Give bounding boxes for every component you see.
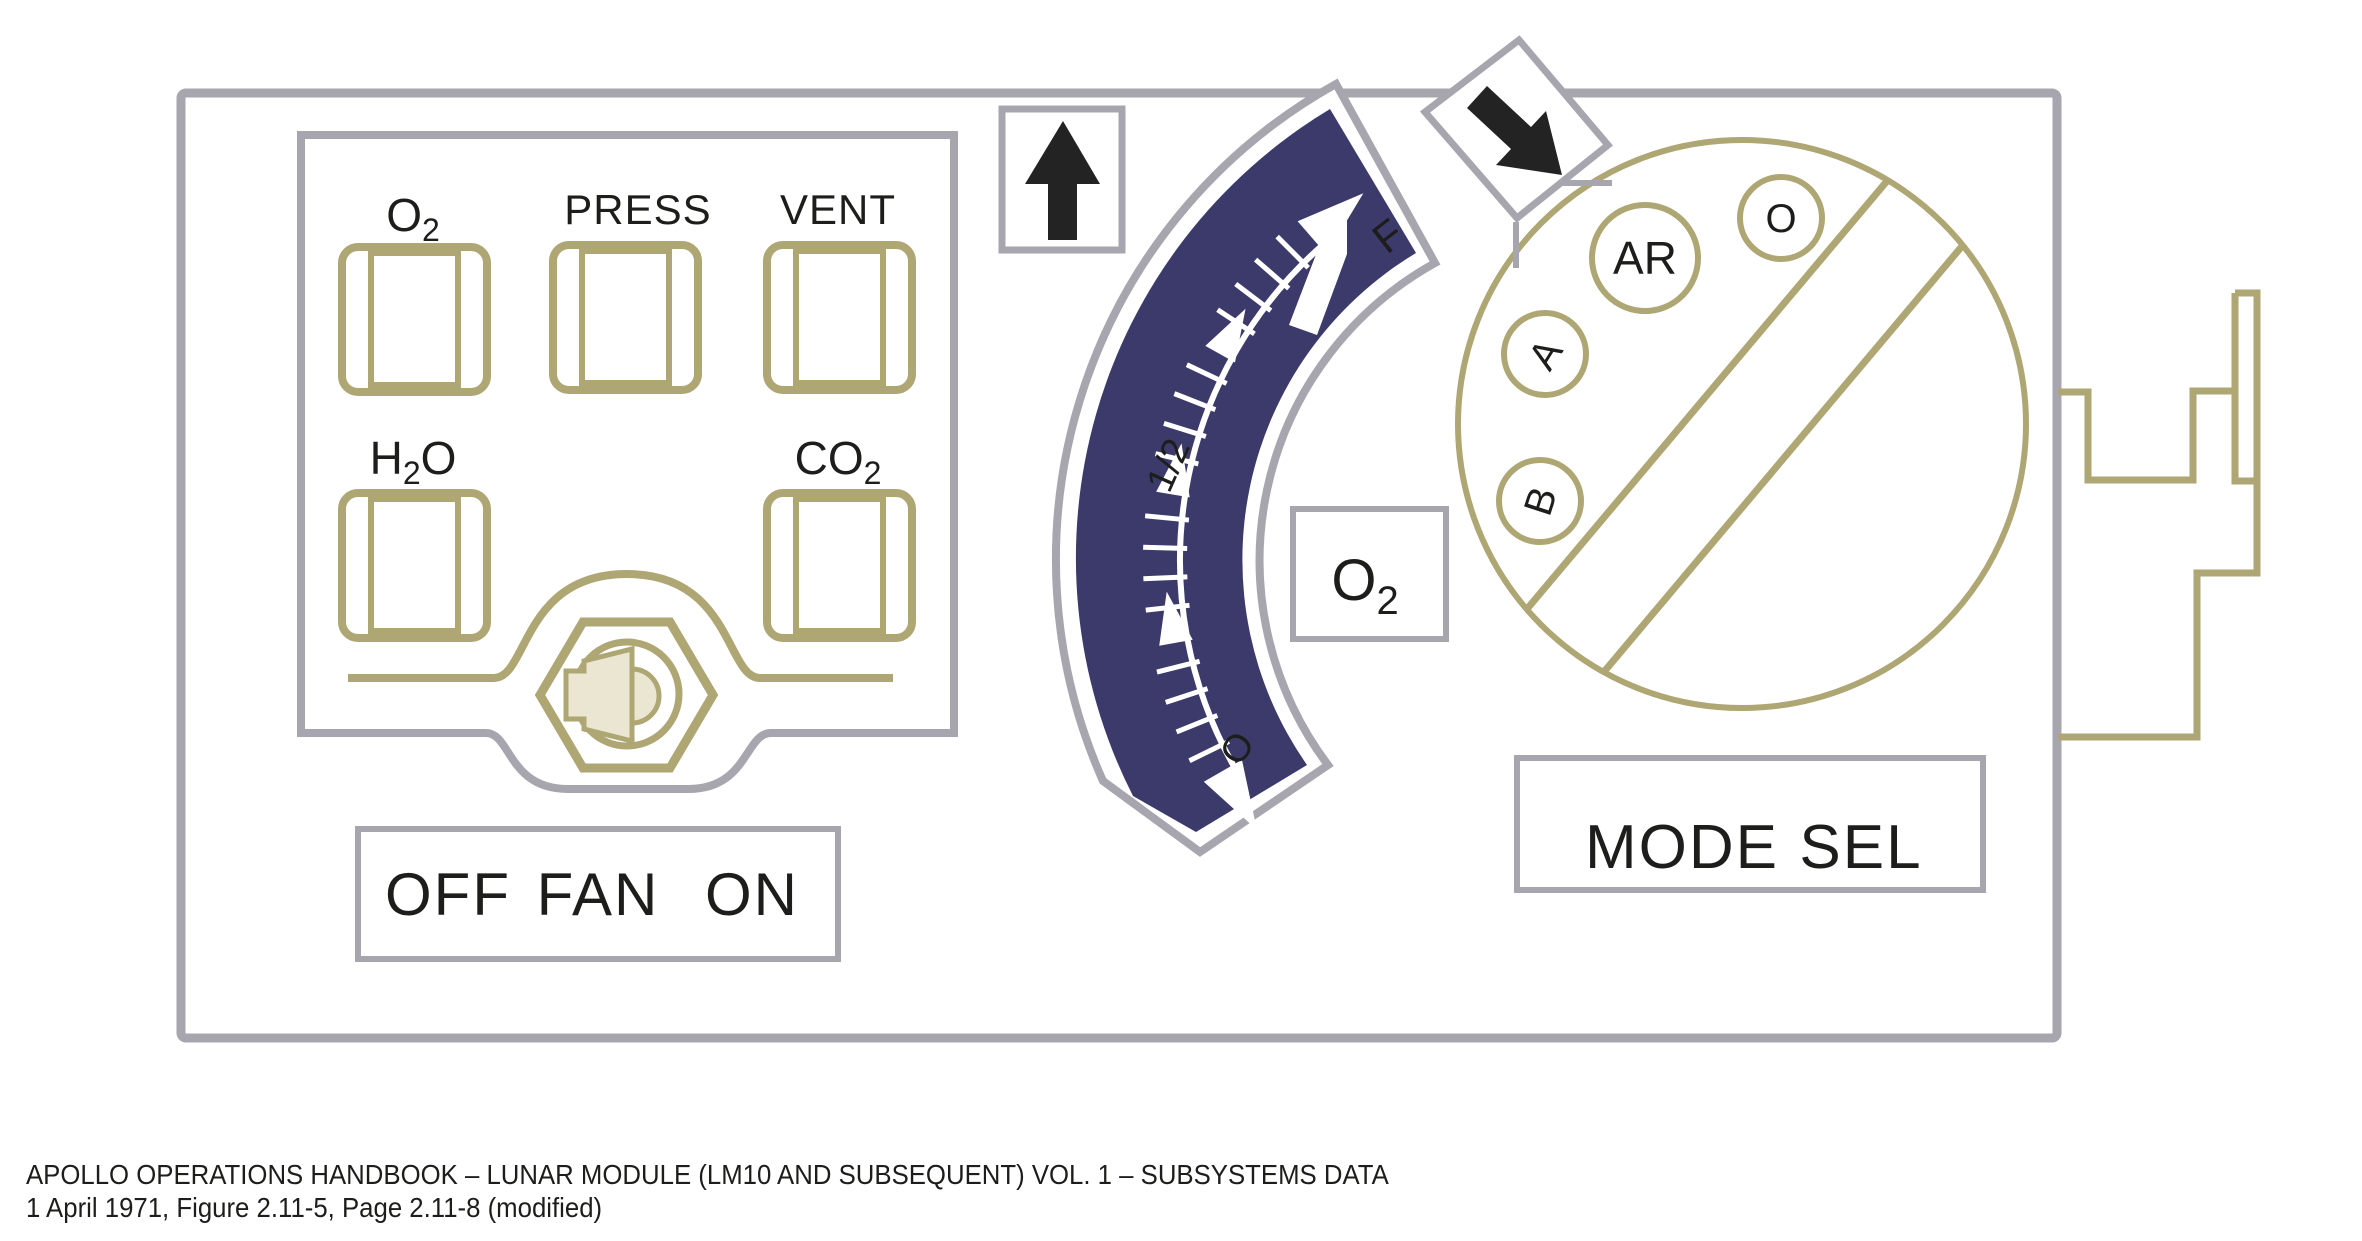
mode-selector: AR O A B [1458, 140, 2026, 708]
indicator-h2o-flag [371, 499, 458, 631]
indicator-vent-flag [796, 251, 883, 383]
fan-off-label: OFF [385, 861, 511, 928]
right-connector-bracket [2058, 293, 2257, 737]
indicator-vent [767, 245, 912, 390]
fan-switch-labels: OFFFANON [385, 861, 799, 928]
indicator-h2o [342, 493, 487, 638]
bracket-outer-path [2058, 293, 2257, 737]
indicator-press-flag [582, 251, 669, 383]
gauge-minor-tick [1143, 577, 1187, 579]
indicator-o2-flag [371, 253, 458, 385]
figure-2-11-5: O2 PRESS VENT H2O CO2 OFFFANON F 1/2 O O… [0, 0, 2362, 1241]
position-o-label: O [1765, 197, 1796, 241]
bracket-upper-path [2058, 391, 2232, 480]
gauge-minor-tick [1143, 547, 1187, 548]
indicator-co2-flag [796, 499, 883, 631]
caption-line-2: 1 April 1971, Figure 2.11-5, Page 2.11-8… [26, 1191, 1389, 1224]
indicator-co2 [767, 493, 912, 638]
up-arrow-annotation [1002, 109, 1122, 250]
label-vent: VENT [780, 186, 896, 233]
speaker-horn-icon [540, 622, 713, 768]
figure-caption: APOLLO OPERATIONS HANDBOOK – LUNAR MODUL… [26, 1158, 1389, 1224]
mode-sel-label: MODESEL [1585, 813, 1923, 882]
indicator-press [553, 245, 698, 390]
caption-line-1: APOLLO OPERATIONS HANDBOOK – LUNAR MODUL… [26, 1158, 1389, 1191]
fan-on-label: ON [705, 861, 799, 928]
label-press: PRESS [564, 186, 711, 233]
indicator-o2 [342, 247, 487, 392]
position-ar-label: AR [1613, 232, 1677, 284]
fan-fan-label: FAN [537, 861, 660, 928]
